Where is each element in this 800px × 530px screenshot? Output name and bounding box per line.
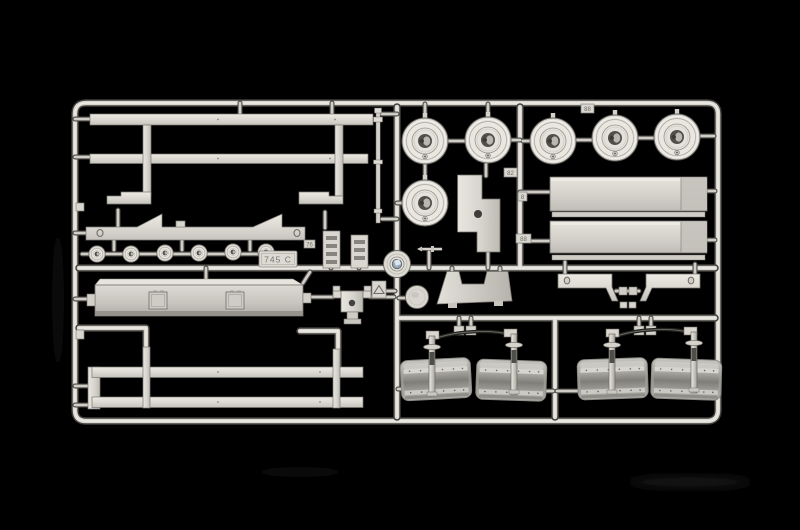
part-hub-cap [384,251,411,278]
gate-number-tag: 8 [518,192,527,201]
gate-tag-text: 76 [306,243,313,249]
toolbox-hatch [149,290,167,309]
blank-gate-tag [176,221,185,227]
part-small-wheel [225,244,241,260]
part-disc [406,286,429,309]
gate-tag-text: 88 [520,237,527,243]
gate-number-tag: 82 [504,168,517,177]
toolbox-hatch [226,290,244,309]
photo-canvas: 745 C [0,0,800,530]
molding-symbol-tag [372,281,386,298]
part-small-wheel [191,245,207,261]
gate-number-tag: 88 [581,104,594,113]
blank-gate-tag [76,330,84,339]
part-small-wheel [157,245,173,261]
part-small-wheel [89,246,105,262]
part-toolbox [87,279,311,316]
gate-number-tag: 76 [304,240,315,249]
gate-number-tag: 88 [516,234,531,243]
part-small-wheel [123,246,139,262]
sprue-code-text: 745 C [264,255,292,265]
blank-gate-tag [629,302,636,308]
part-fender [651,358,722,400]
gate-tag-text: 82 [507,171,514,177]
blank-gate-tag [76,203,84,211]
blank-gate-tag [620,302,627,308]
sprue-code-tag: 745 C [259,251,297,267]
gate-tag-text: 88 [584,107,591,113]
sprue-photo: 745 C [0,0,800,530]
